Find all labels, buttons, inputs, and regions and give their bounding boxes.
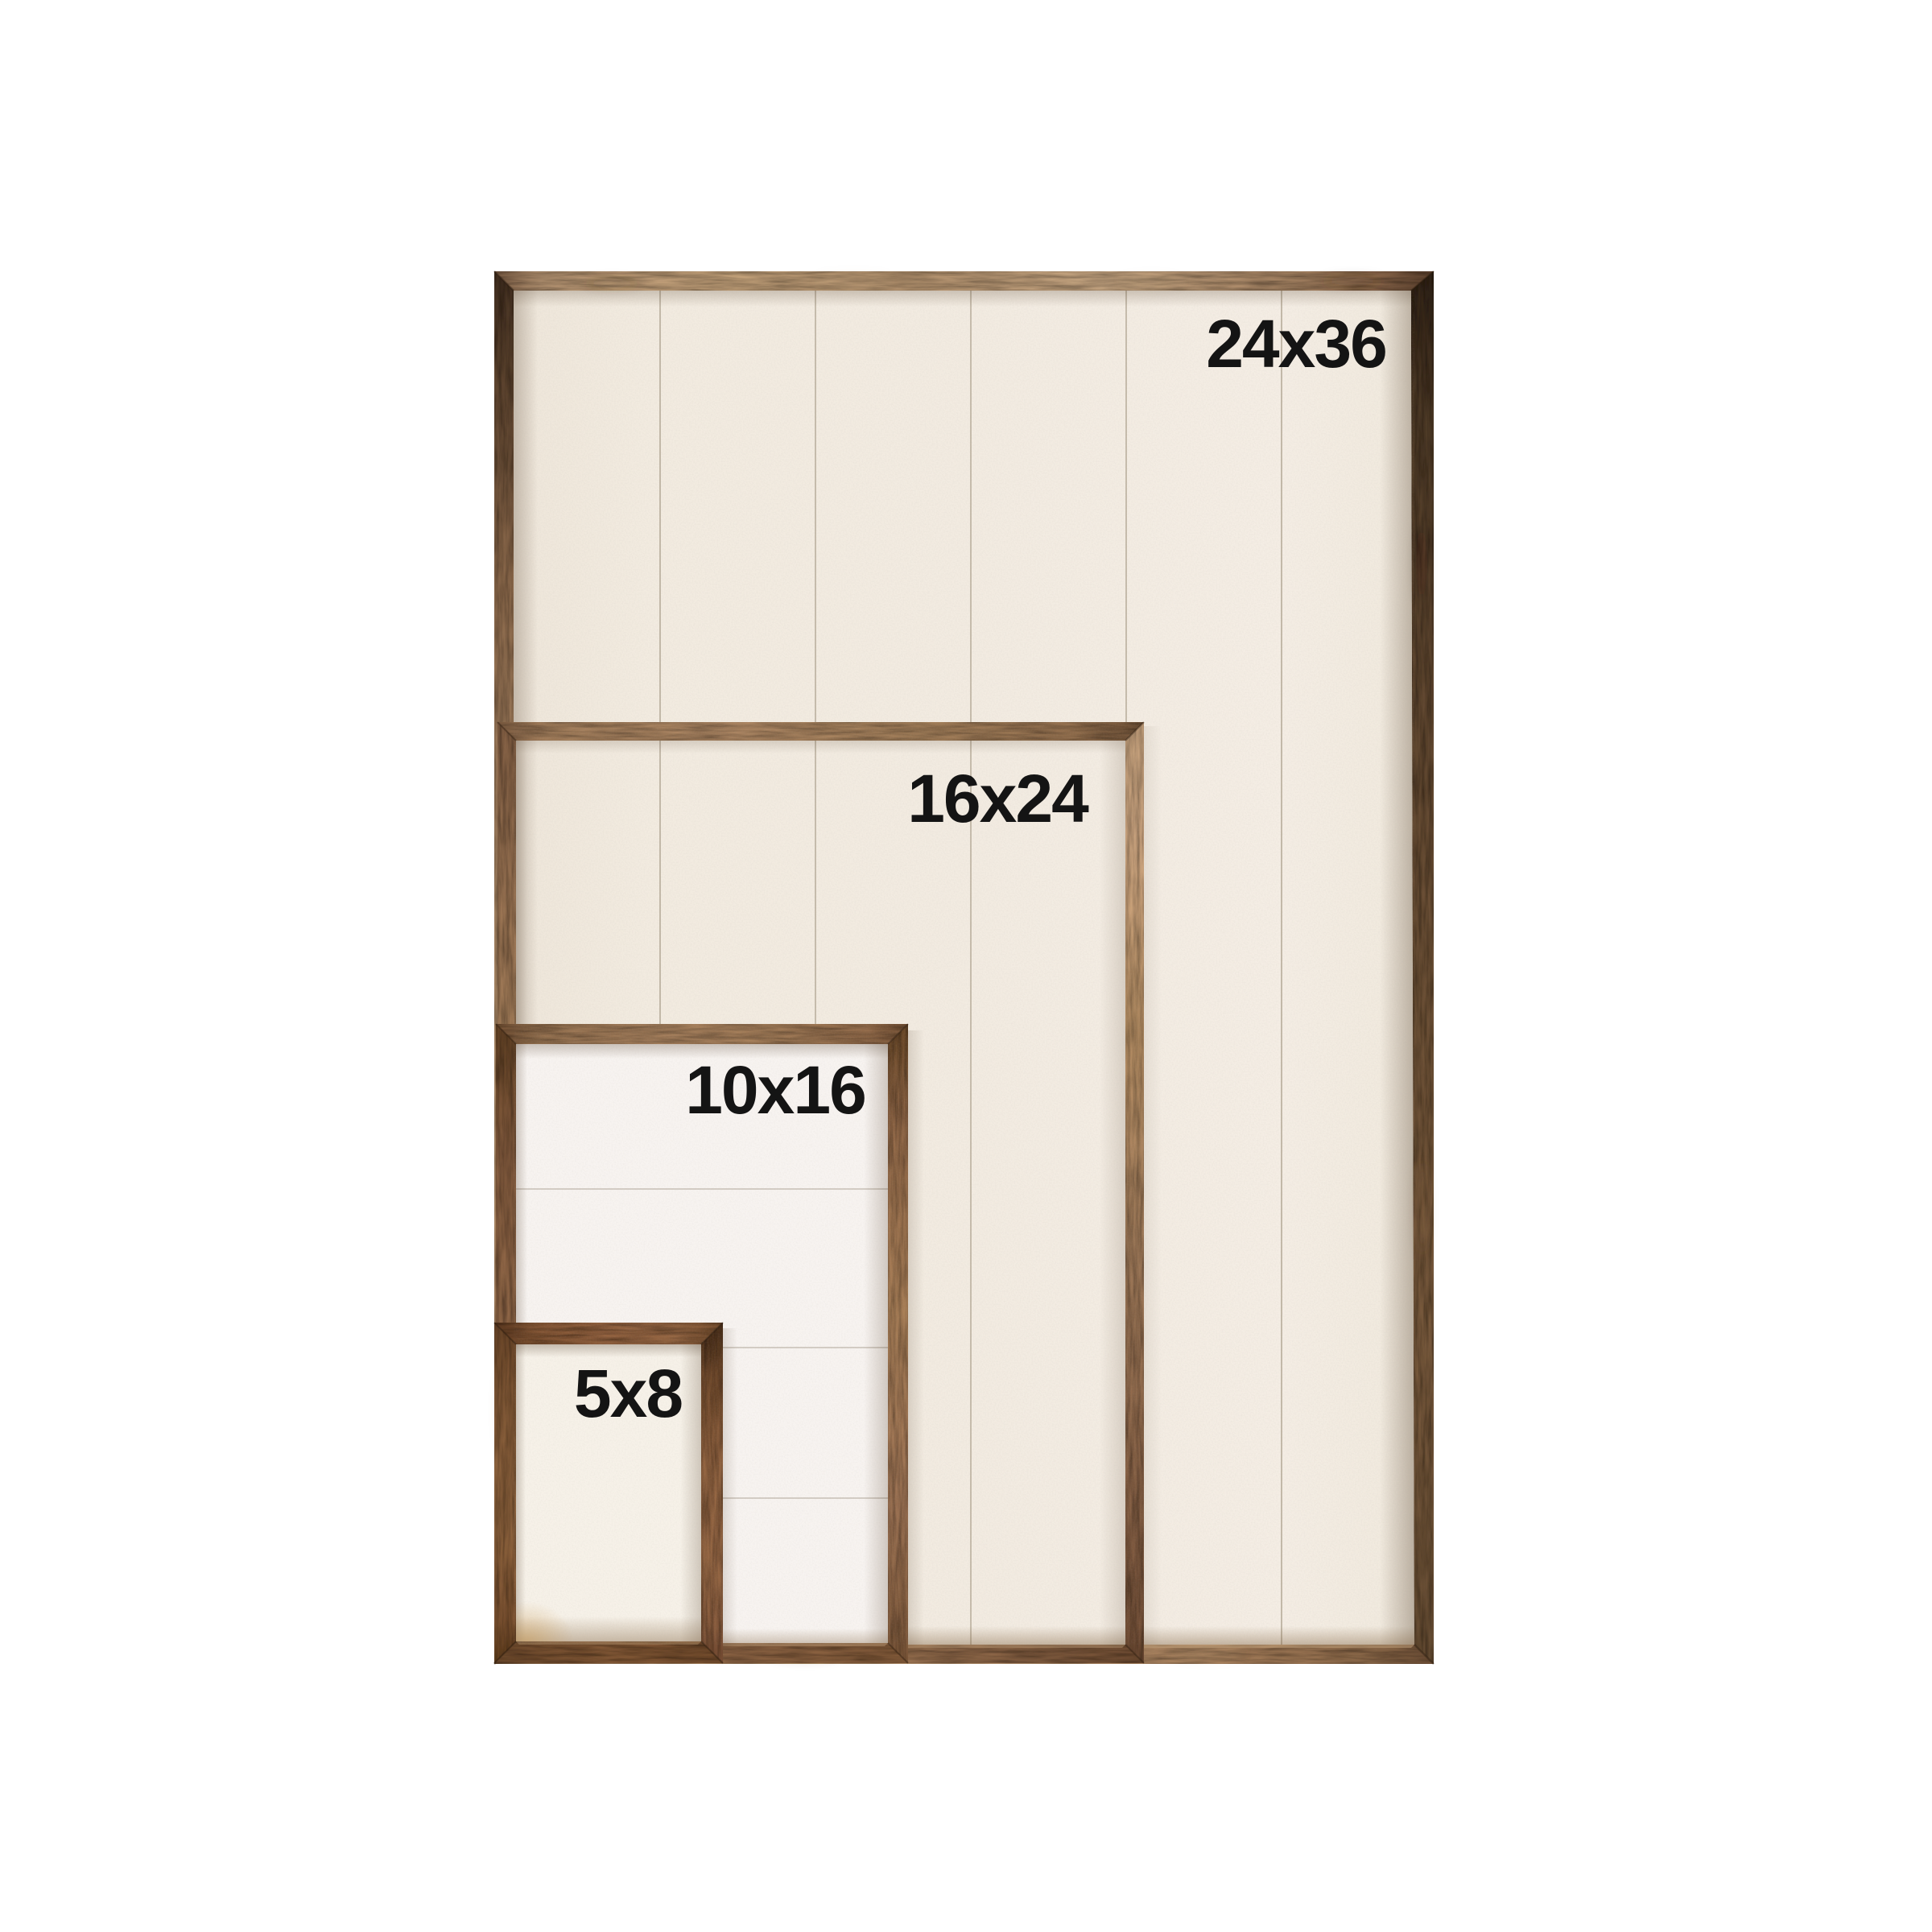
- svg-text:5x8: 5x8: [574, 1356, 682, 1431]
- svg-text:10x16: 10x16: [685, 1052, 865, 1128]
- svg-text:16x24: 16x24: [907, 761, 1089, 836]
- svg-text:24x36: 24x36: [1206, 306, 1386, 382]
